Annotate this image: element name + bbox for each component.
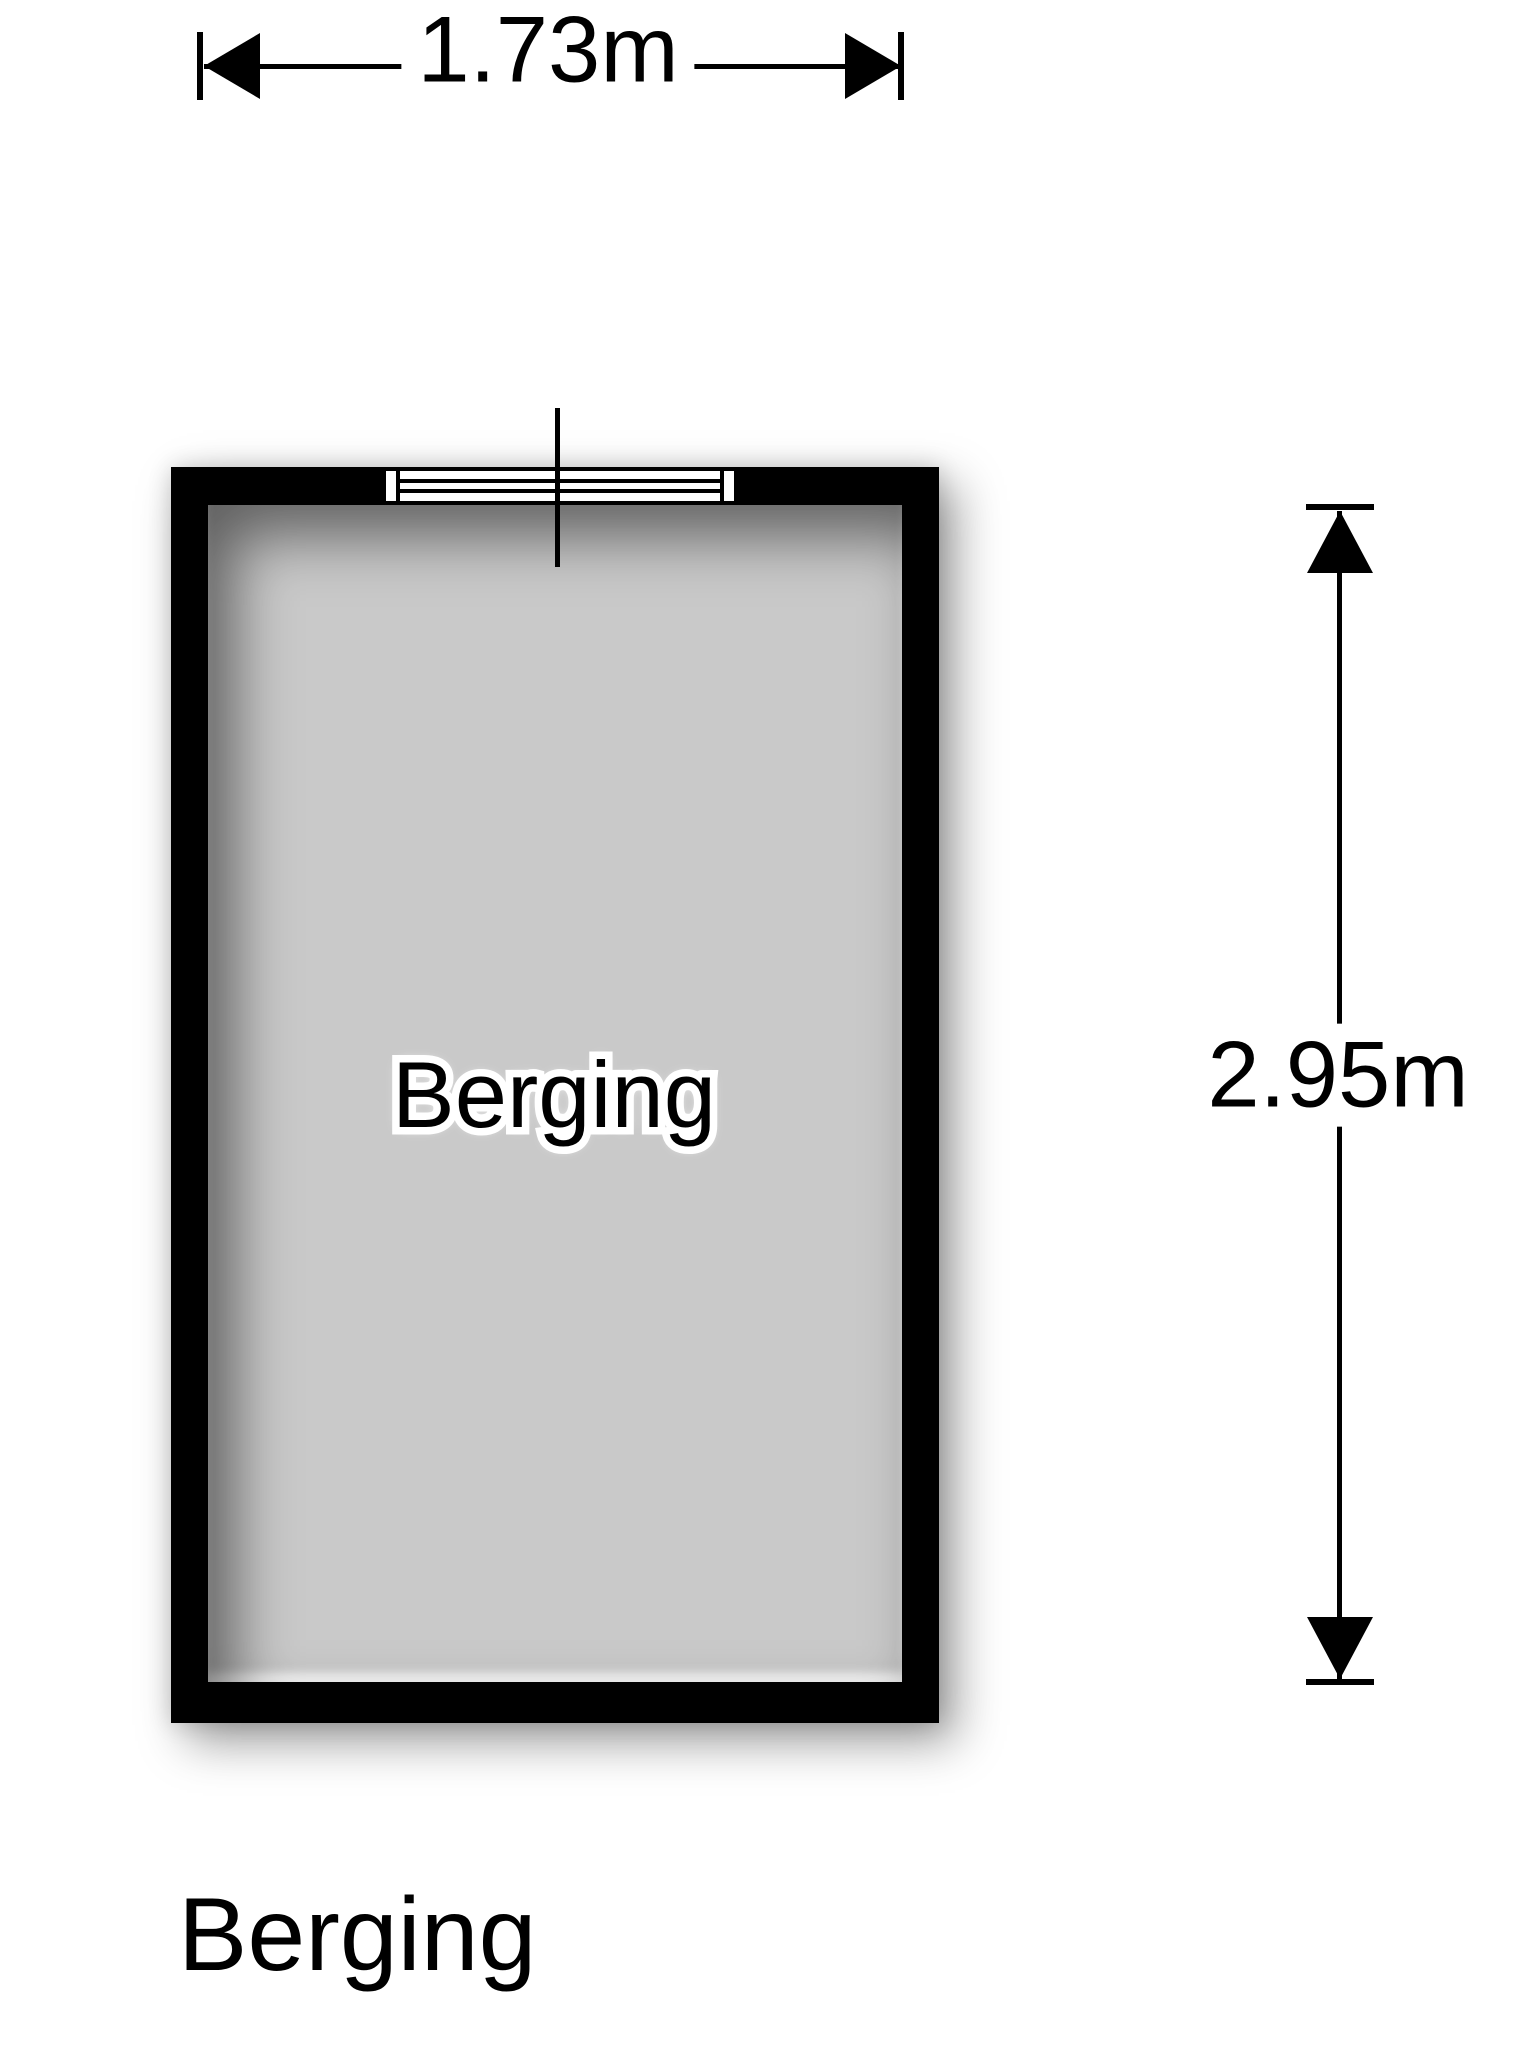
window-cap-left — [382, 467, 400, 505]
window-glazing-line — [400, 489, 720, 493]
dimension-terminator-left — [197, 32, 203, 100]
window-glazing — [400, 467, 720, 505]
dimension-terminator-top — [1306, 504, 1374, 510]
dimension-terminator-bottom — [1306, 1679, 1374, 1685]
floorplan-canvas: 1.73m Berging Berging 2.95m Berging — [0, 0, 1536, 2048]
arrow-down-icon — [1307, 1617, 1373, 1679]
arrow-right-icon — [845, 33, 901, 99]
dimension-terminator-right — [898, 32, 904, 100]
window-glazing-line — [400, 479, 720, 483]
width-dimension-label: 1.73m — [401, 0, 694, 101]
height-dimension-label: 2.95m — [1191, 1024, 1484, 1127]
window-center-mark — [555, 408, 560, 567]
plan-title: Berging — [178, 1878, 536, 1992]
room-label-text: Berging — [392, 1041, 716, 1149]
window-cap-right — [720, 467, 738, 505]
window — [382, 467, 738, 505]
